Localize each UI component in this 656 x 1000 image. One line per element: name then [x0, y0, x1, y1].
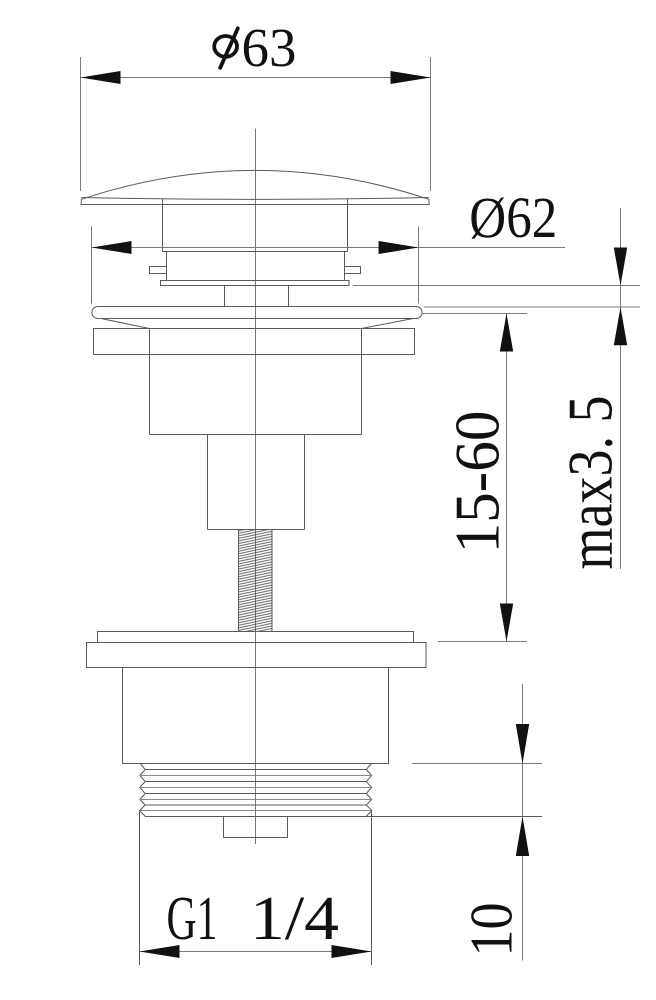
svg-text:G1: G1: [167, 885, 218, 953]
svg-text:63: 63: [242, 17, 297, 78]
svg-text:15-60: 15-60: [443, 411, 513, 554]
svg-text:1/4: 1/4: [250, 885, 339, 953]
svg-text:Ø62: Ø62: [469, 185, 557, 250]
svg-text:10: 10: [459, 903, 525, 957]
svg-text:max3. 5: max3. 5: [556, 396, 626, 570]
